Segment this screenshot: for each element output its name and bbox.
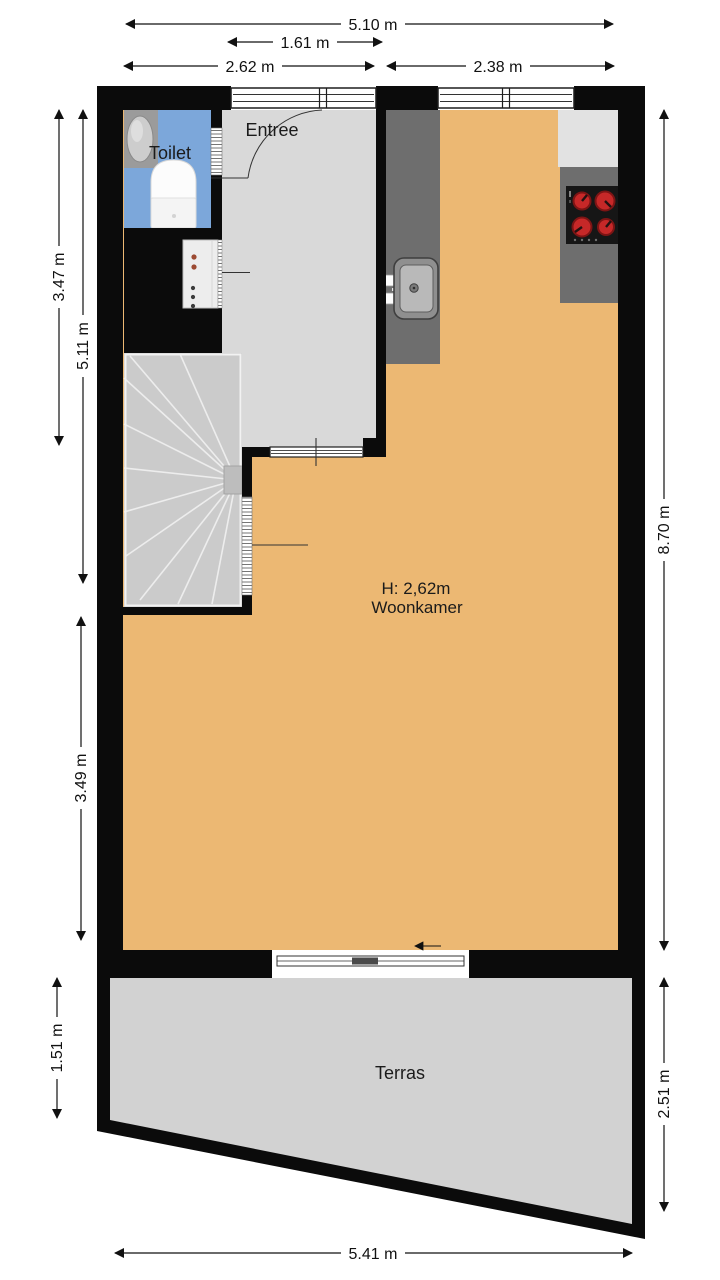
dimension-top-total: 5.10 m [126,15,613,34]
dimension-left-upper: 3.47 m [49,110,69,445]
wall-top-middle [376,86,438,110]
svg-text:3.49 m: 3.49 m [73,754,90,803]
dimension-right-terras: 2.51 m [654,978,674,1211]
floorplan-page: Toilet Entree H: 2,62m Woonkamer Terras … [0,0,720,1280]
svg-text:2.38 m: 2.38 m [474,59,523,76]
svg-text:5.11 m: 5.11 m [75,322,92,370]
dimension-left-lower: 3.49 m [71,617,91,940]
svg-text:8.70 m: 8.70 m [656,506,673,555]
entree-floor [222,110,376,447]
svg-text:1.51 m: 1.51 m [49,1024,66,1073]
wall-bottom-left [97,950,272,978]
dimension-left-stairwell: 5.11 m [73,110,93,583]
woonkamer-label: Woonkamer [371,598,463,617]
woonkamer-height-label: H: 2,62m [382,579,451,598]
dimension-bottom-total: 5.41 m [115,1244,632,1263]
toilet-label: Toilet [149,143,191,163]
svg-text:5.10 m: 5.10 m [349,17,398,34]
svg-text:5.41 m: 5.41 m [349,1246,398,1263]
entree-label: Entree [245,120,298,140]
kitchen-counter-left [386,110,440,364]
sliding-door [272,946,469,983]
winder-staircase [124,353,242,607]
svg-text:2.51 m: 2.51 m [656,1070,673,1119]
wall-middle [376,110,386,457]
svg-text:2.62 m: 2.62 m [226,59,275,76]
terras-floor [110,978,632,1224]
dimension-top-right: 2.38 m [387,57,614,76]
toilet-fixture-icon [151,160,196,228]
floorplan-canvas: Toilet Entree H: 2,62m Woonkamer Terras … [0,0,720,1280]
dimension-left-terras: 1.51 m [47,978,67,1118]
wall-right [618,86,645,978]
stove-icon [566,186,618,244]
dimension-top-left: 2.62 m [124,57,374,76]
svg-text:3.47 m: 3.47 m [51,253,68,302]
terras-label: Terras [375,1063,425,1083]
wall-below-stairs [97,607,250,615]
wall-left [97,86,123,978]
kitchen-window-top [438,88,574,108]
wall-corner-stairs [242,447,270,457]
svg-text:1.61 m: 1.61 m [281,35,330,52]
dimension-top-entree: 1.61 m [228,33,382,52]
dimension-right-house: 8.70 m [654,110,674,950]
kitchen-counter-right-light [558,110,620,167]
entree-window-top [231,88,376,108]
wall-bottom-right [469,950,645,978]
